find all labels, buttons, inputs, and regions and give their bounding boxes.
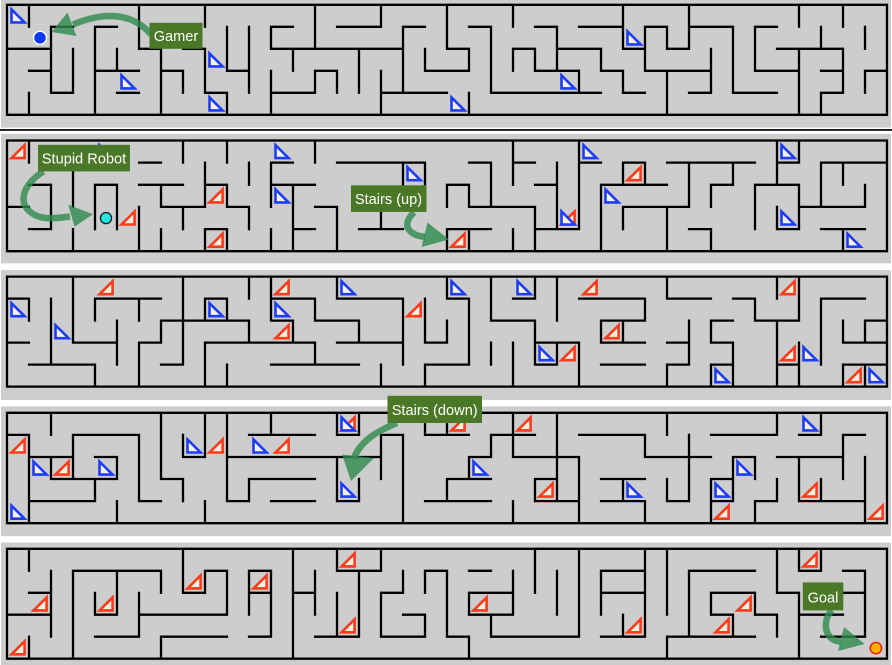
svg-text:Goal: Goal xyxy=(808,590,839,606)
svg-text:Gamer: Gamer xyxy=(154,29,199,45)
svg-text:Stairs (down): Stairs (down) xyxy=(392,403,478,419)
svg-text:Stupid Robot: Stupid Robot xyxy=(42,152,126,168)
svg-text:Stairs (up): Stairs (up) xyxy=(355,192,422,208)
